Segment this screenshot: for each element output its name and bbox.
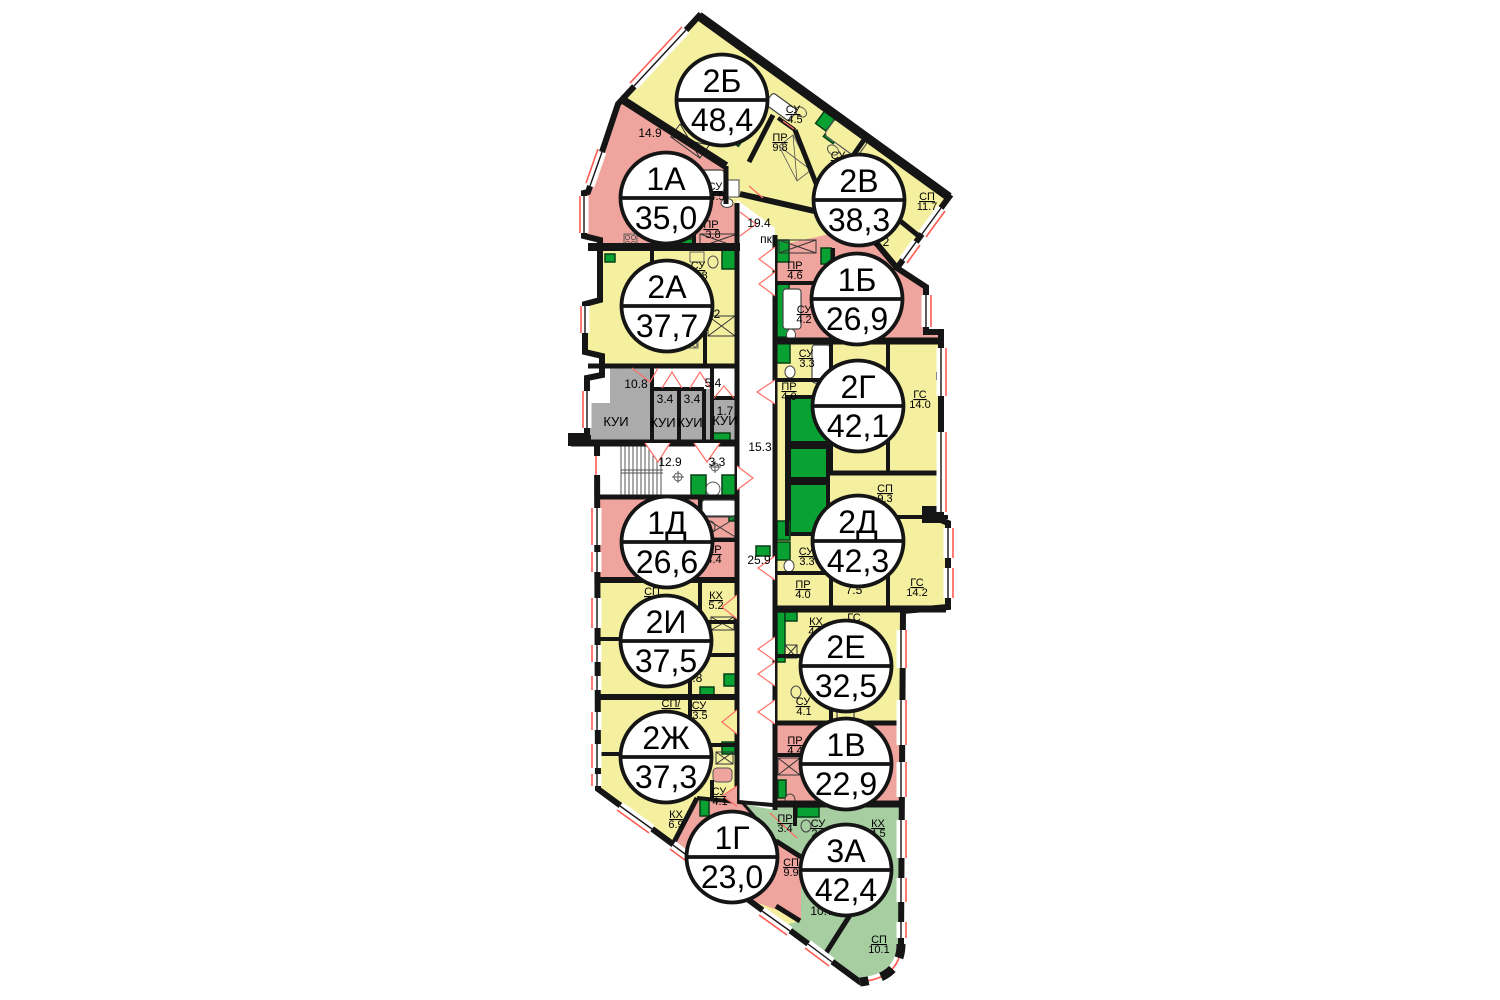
svg-text:пк: пк bbox=[760, 232, 772, 246]
svg-text:3.3: 3.3 bbox=[799, 556, 814, 568]
svg-text:19.4: 19.4 bbox=[747, 216, 771, 230]
svg-text:КУИ: КУИ bbox=[603, 414, 628, 429]
svg-text:2Е: 2Е bbox=[826, 629, 865, 665]
svg-text:5.2: 5.2 bbox=[708, 600, 723, 612]
svg-text:4.2: 4.2 bbox=[796, 314, 811, 326]
svg-text:3.4: 3.4 bbox=[657, 392, 674, 406]
svg-text:26,9: 26,9 bbox=[826, 301, 888, 337]
svg-text:42,3: 42,3 bbox=[827, 543, 889, 579]
svg-text:37,5: 37,5 bbox=[635, 643, 697, 679]
svg-text:2Д: 2Д bbox=[838, 504, 878, 540]
svg-text:42,1: 42,1 bbox=[827, 408, 889, 444]
svg-text:2А: 2А bbox=[647, 269, 687, 305]
svg-text:3.8: 3.8 bbox=[705, 229, 720, 241]
svg-text:1Д: 1Д bbox=[647, 505, 687, 541]
svg-text:4.1: 4.1 bbox=[712, 796, 727, 808]
svg-text:26,6: 26,6 bbox=[636, 544, 698, 580]
svg-text:КУИ: КУИ bbox=[712, 413, 737, 428]
svg-text:9.8: 9.8 bbox=[772, 142, 787, 154]
svg-text:СП/: СП/ bbox=[662, 698, 682, 710]
svg-text:КУИ: КУИ bbox=[650, 415, 675, 430]
svg-text:25.9: 25.9 bbox=[747, 553, 771, 567]
svg-text:37,7: 37,7 bbox=[636, 308, 698, 344]
svg-text:2В: 2В bbox=[839, 163, 878, 199]
svg-text:5.4: 5.4 bbox=[705, 376, 722, 390]
svg-text:4.5: 4.5 bbox=[787, 114, 802, 126]
svg-text:4.6: 4.6 bbox=[787, 270, 802, 282]
svg-text:3.4: 3.4 bbox=[684, 392, 701, 406]
svg-text:2И: 2И bbox=[646, 604, 687, 640]
svg-text:10.1: 10.1 bbox=[868, 944, 889, 956]
svg-text:22,9: 22,9 bbox=[815, 766, 877, 802]
svg-text:15.3: 15.3 bbox=[748, 440, 772, 454]
svg-text:1Б: 1Б bbox=[838, 262, 877, 298]
svg-text:12.9: 12.9 bbox=[658, 455, 682, 469]
svg-text:4.0: 4.0 bbox=[795, 589, 810, 601]
svg-text:3.3: 3.3 bbox=[709, 455, 726, 469]
svg-text:КУИ: КУИ bbox=[677, 415, 702, 430]
svg-text:48,4: 48,4 bbox=[691, 102, 753, 138]
svg-text:3А: 3А bbox=[826, 833, 866, 869]
svg-text:14.9: 14.9 bbox=[638, 126, 662, 140]
svg-text:3.4: 3.4 bbox=[777, 823, 792, 835]
svg-text:14.2: 14.2 bbox=[906, 587, 927, 599]
svg-text:37,3: 37,3 bbox=[635, 759, 697, 795]
svg-text:4.0: 4.0 bbox=[781, 391, 796, 403]
svg-text:6.9: 6.9 bbox=[668, 819, 683, 831]
svg-text:1В: 1В bbox=[826, 727, 865, 763]
svg-text:23,0: 23,0 bbox=[701, 859, 763, 895]
svg-text:3.3: 3.3 bbox=[799, 358, 814, 370]
svg-text:2Ж: 2Ж bbox=[642, 720, 690, 756]
svg-text:1А: 1А bbox=[646, 161, 686, 197]
svg-text:11.7: 11.7 bbox=[917, 201, 938, 213]
svg-text:14.0: 14.0 bbox=[909, 399, 930, 411]
svg-text:1Г: 1Г bbox=[714, 820, 749, 856]
svg-text:2Б: 2Б bbox=[703, 63, 742, 99]
svg-text:35,0: 35,0 bbox=[635, 200, 697, 236]
svg-text:42,4: 42,4 bbox=[815, 872, 877, 908]
svg-text:38,3: 38,3 bbox=[828, 202, 890, 238]
svg-text:10.8: 10.8 bbox=[624, 377, 648, 391]
svg-text:9.9: 9.9 bbox=[783, 867, 798, 879]
svg-text:32,5: 32,5 bbox=[815, 668, 877, 704]
svg-text:4.1: 4.1 bbox=[796, 706, 811, 718]
svg-text:2Г: 2Г bbox=[840, 369, 875, 405]
